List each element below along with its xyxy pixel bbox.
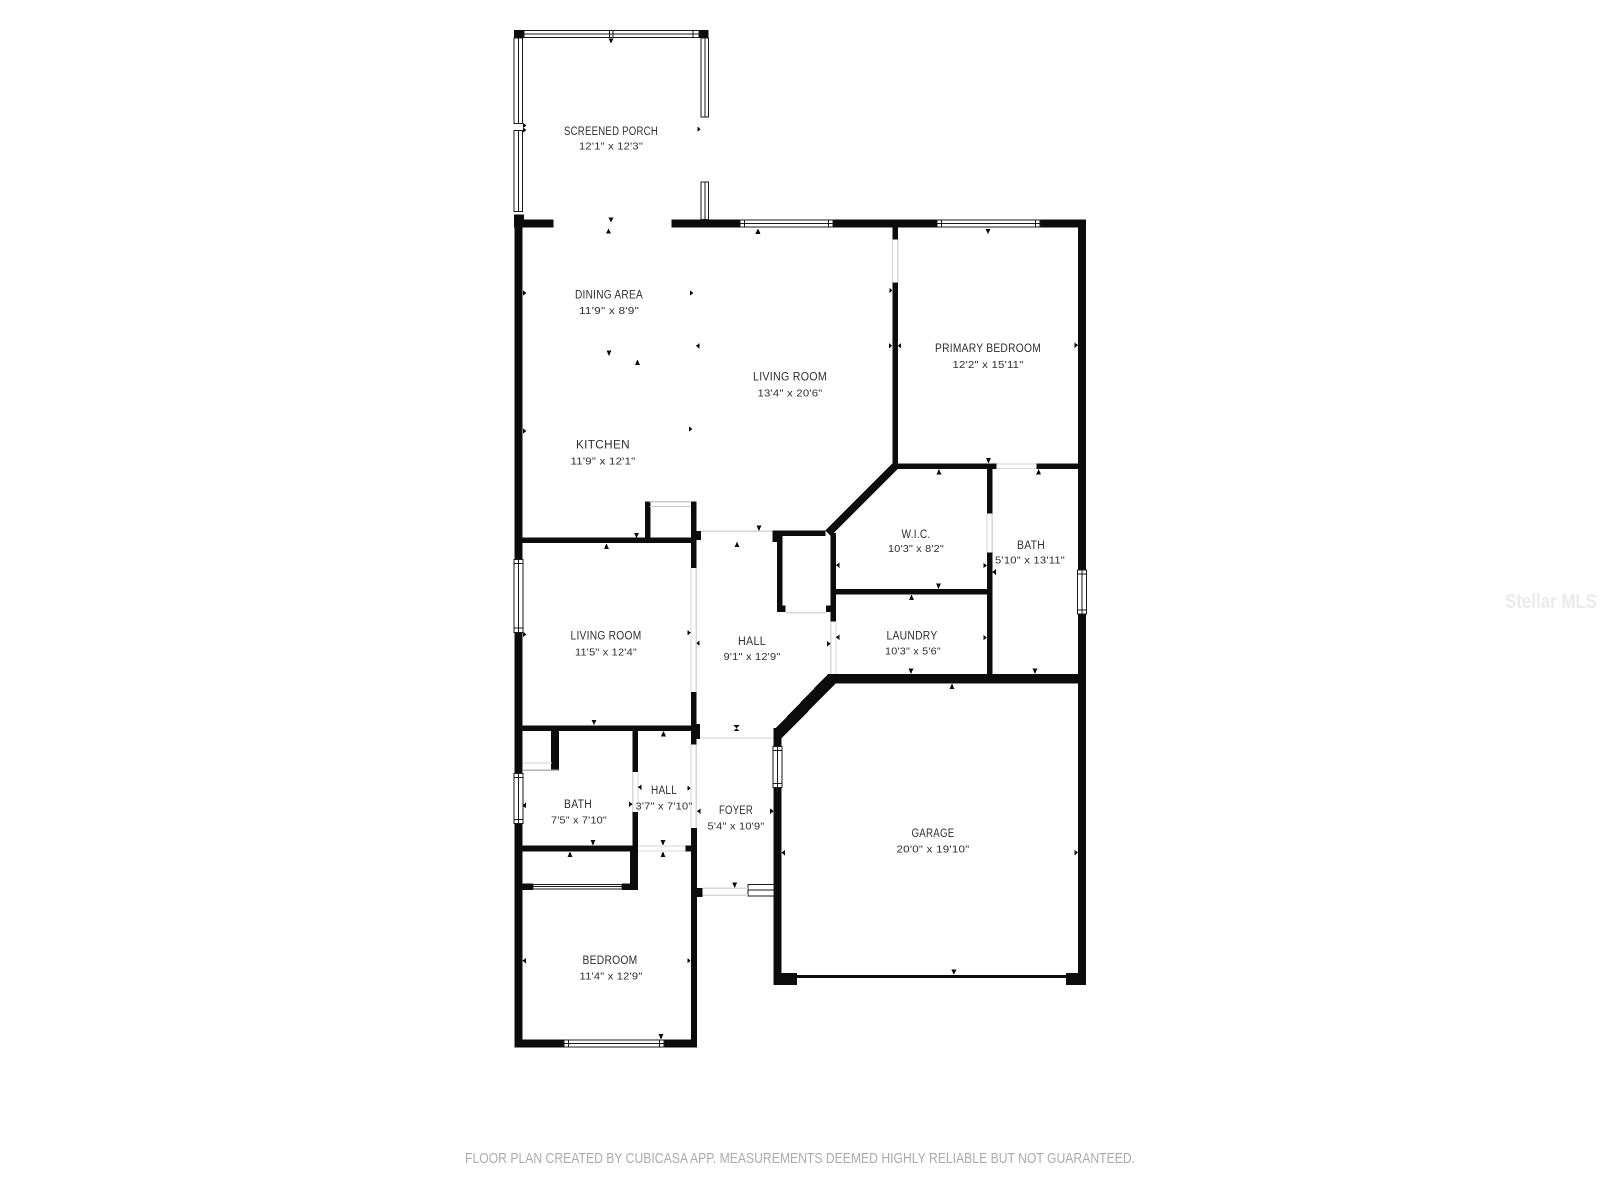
svg-text:10'3" x 5'6": 10'3" x 5'6" xyxy=(885,646,941,658)
svg-text:LIVING ROOM: LIVING ROOM xyxy=(753,372,827,384)
svg-text:W.I.C.: W.I.C. xyxy=(902,529,931,541)
svg-text:11'5" x 12'4": 11'5" x 12'4" xyxy=(575,647,637,659)
svg-text:FOYER: FOYER xyxy=(719,805,753,817)
svg-text:BATH: BATH xyxy=(564,799,592,811)
svg-text:DINING AREA: DINING AREA xyxy=(575,290,643,302)
svg-text:FLOOR PLAN CREATED BY CUBICASA: FLOOR PLAN CREATED BY CUBICASA APP. MEAS… xyxy=(465,1150,1135,1167)
svg-text:BEDROOM: BEDROOM xyxy=(583,955,638,967)
svg-text:10'3" x 8'2": 10'3" x 8'2" xyxy=(888,543,944,555)
svg-text:11'4" x 12'9": 11'4" x 12'9" xyxy=(580,971,643,983)
svg-text:3'7" x 7'10": 3'7" x 7'10" xyxy=(636,801,693,813)
svg-text:12'2" x 15'11": 12'2" x 15'11" xyxy=(953,359,1024,371)
svg-text:HALL: HALL xyxy=(651,785,677,797)
svg-text:HALL: HALL xyxy=(738,636,766,648)
svg-text:GARAGE: GARAGE xyxy=(912,828,955,840)
svg-text:5'10" x 13'11": 5'10" x 13'11" xyxy=(995,555,1065,567)
svg-text:PRIMARY BEDROOM: PRIMARY BEDROOM xyxy=(935,343,1041,355)
svg-text:20'0" x 19'10": 20'0" x 19'10" xyxy=(897,844,970,856)
svg-text:11'9" x 8'9": 11'9" x 8'9" xyxy=(579,305,639,317)
svg-text:11'9" x 12'1": 11'9" x 12'1" xyxy=(571,456,636,468)
svg-text:LAUNDRY: LAUNDRY xyxy=(887,631,938,643)
svg-text:KITCHEN: KITCHEN xyxy=(576,440,630,452)
svg-text:Stellar MLS: Stellar MLS xyxy=(1505,591,1597,613)
svg-text:SCREENED PORCH: SCREENED PORCH xyxy=(564,126,658,138)
svg-text:13'4" x 20'6": 13'4" x 20'6" xyxy=(758,388,823,400)
svg-text:5'4" x 10'9": 5'4" x 10'9" xyxy=(708,821,765,833)
svg-text:12'1" x 12'3": 12'1" x 12'3" xyxy=(579,141,643,153)
svg-text:9'1" x 12'9": 9'1" x 12'9" xyxy=(724,651,781,663)
svg-text:7'5" x 7'10": 7'5" x 7'10" xyxy=(551,815,607,827)
svg-text:BATH: BATH xyxy=(1017,540,1045,552)
svg-text:LIVING ROOM: LIVING ROOM xyxy=(571,631,642,643)
